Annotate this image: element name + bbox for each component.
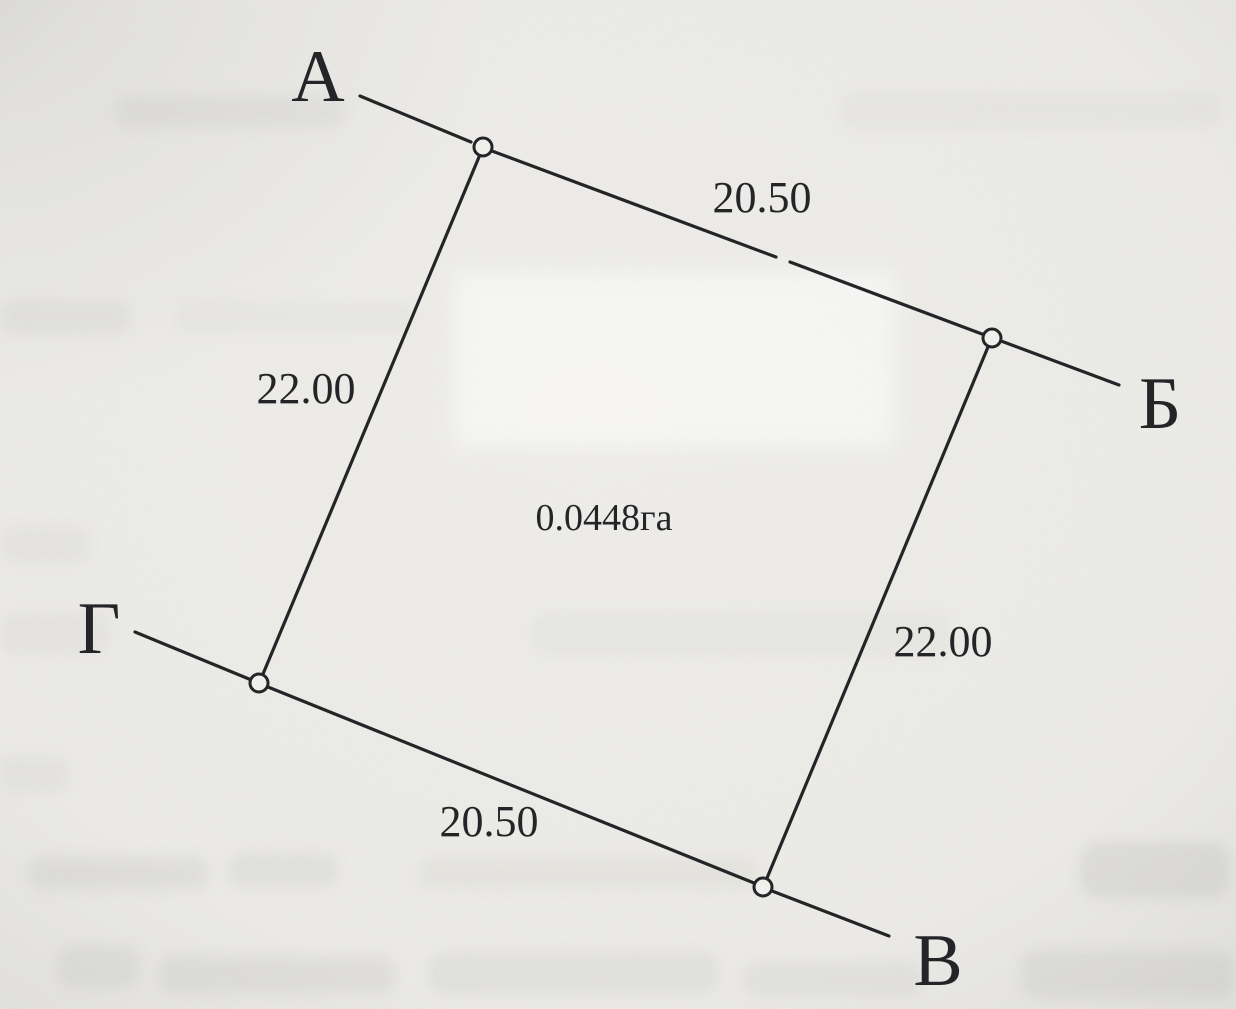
parcel-plan-figure: А Б В Г 20.50 22.00 22.00 20.50 0.0448га xyxy=(0,0,1236,1009)
scanned-parcel-plan-page: А Б В Г 20.50 22.00 22.00 20.50 0.0448га xyxy=(0,0,1236,1009)
paper-grain-overlay xyxy=(0,0,1236,1009)
